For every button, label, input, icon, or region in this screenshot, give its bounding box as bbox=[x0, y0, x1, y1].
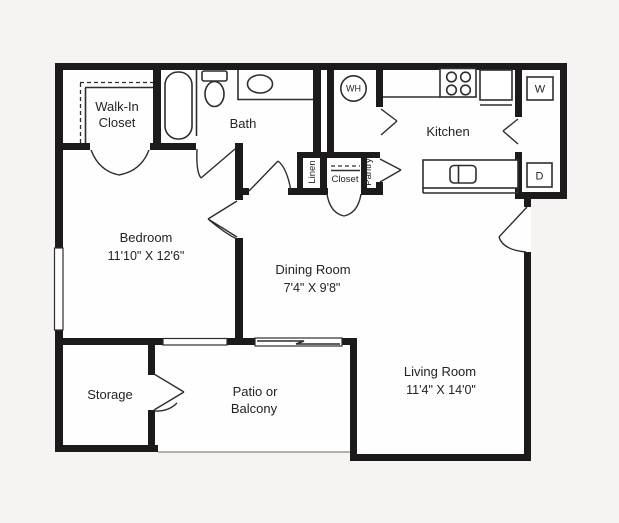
wall-bath-strip-mid bbox=[150, 143, 196, 150]
water-heater: WH bbox=[341, 76, 366, 101]
wall-living-right-stub bbox=[524, 199, 531, 207]
island-sink-icon bbox=[450, 166, 476, 184]
toilet-bowl-icon bbox=[205, 82, 224, 107]
washer-label: W bbox=[535, 84, 546, 96]
wall-outer-right bbox=[560, 63, 567, 199]
wall-bedroom-bottom-left bbox=[55, 338, 163, 345]
wall-top bbox=[55, 63, 567, 70]
walk-in-closet-label-line2: Closet bbox=[99, 115, 136, 130]
wall-hall-door-stub bbox=[243, 188, 249, 195]
wall-bedroom-divider-lower bbox=[235, 238, 243, 338]
wall-living-left bbox=[350, 338, 357, 461]
wall-bedroom-divider-upper bbox=[235, 143, 243, 200]
floor-living-room bbox=[350, 338, 531, 461]
wall-kitchen-laundry-upper bbox=[515, 63, 522, 117]
storage-label: Storage bbox=[87, 387, 133, 402]
wall-left-lower bbox=[55, 330, 63, 452]
bathtub-icon bbox=[165, 72, 192, 139]
bath-label: Bath bbox=[230, 116, 257, 131]
linen-label: Linen bbox=[307, 160, 318, 183]
wall-pantry-right-stub bbox=[376, 182, 383, 195]
patio-label-line2: Balcony bbox=[231, 401, 278, 416]
wall-hall-closets-top bbox=[297, 152, 380, 158]
stove-icon bbox=[440, 69, 476, 98]
floor-plan-drawing: WH W D bbox=[0, 0, 619, 523]
living-room-dimensions: 11'4" X 14'0" bbox=[406, 383, 476, 397]
water-heater-label: WH bbox=[346, 84, 361, 94]
wall-bath-strip-left bbox=[55, 143, 90, 150]
wall-storage-right-lower bbox=[148, 410, 155, 452]
wall-bedroom-bottom-right bbox=[227, 338, 255, 345]
living-room-label: Living Room bbox=[404, 364, 476, 379]
walk-in-closet-label-line1: Walk-In bbox=[95, 99, 139, 114]
wall-storage-bottom bbox=[55, 445, 158, 452]
dryer-label: D bbox=[536, 171, 544, 183]
patio-label-line1: Patio or bbox=[233, 384, 278, 399]
dining-room-dimensions: 7'4" X 9'8" bbox=[284, 281, 341, 295]
wall-left-upper bbox=[55, 63, 63, 248]
bath-sink-icon bbox=[248, 75, 273, 93]
wall-linen-closet-divider bbox=[320, 158, 327, 188]
wall-living-right bbox=[524, 252, 531, 461]
wall-wh-right bbox=[376, 70, 383, 107]
toilet-tank-icon bbox=[202, 71, 227, 81]
floor-plan-page: WH W D bbox=[0, 0, 619, 523]
bedroom-patio-window bbox=[163, 339, 227, 346]
wall-laundry-bottom bbox=[515, 192, 567, 199]
pantry-label: Pantry bbox=[363, 158, 374, 186]
wall-bath-right bbox=[313, 70, 321, 158]
wall-living-bottom bbox=[350, 454, 531, 461]
wall-linen-left bbox=[297, 158, 303, 188]
bedroom-side-window bbox=[55, 248, 64, 330]
dining-room-label: Dining Room bbox=[275, 262, 350, 277]
kitchen-sink-icon bbox=[480, 70, 512, 100]
wall-storage-right-upper bbox=[148, 345, 155, 375]
bedroom-dimensions: 11'10" X 12'6" bbox=[108, 249, 185, 263]
bedroom-label: Bedroom bbox=[120, 230, 173, 245]
wall-closet-tub-divider bbox=[153, 70, 161, 143]
kitchen-label: Kitchen bbox=[426, 124, 469, 139]
wall-linen-bottom bbox=[288, 188, 328, 195]
hall-closet-label: Closet bbox=[332, 174, 359, 185]
wall-wh-left bbox=[327, 70, 334, 158]
